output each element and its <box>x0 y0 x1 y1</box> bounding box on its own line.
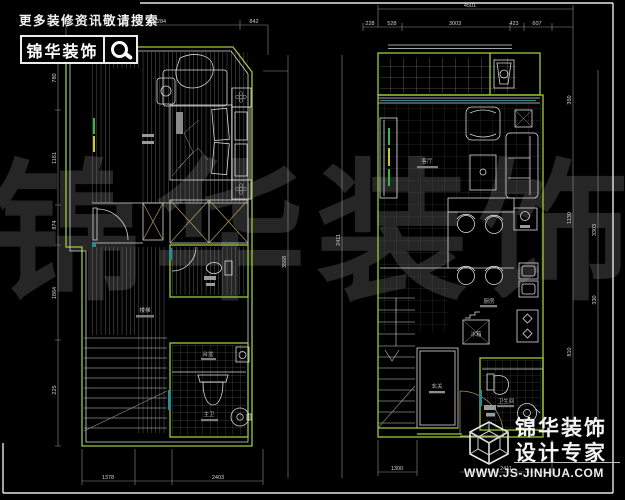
svg-text:228: 228 <box>365 21 374 27</box>
svg-text:780: 780 <box>52 73 58 82</box>
fridge: 冰箱 <box>463 312 489 344</box>
svg-text:1378: 1378 <box>102 475 114 481</box>
svg-text:2411: 2411 <box>336 234 342 246</box>
svg-text:1864: 1864 <box>52 287 58 299</box>
svg-text:玄关: 玄关 <box>431 382 443 390</box>
hallway-label: 楼梯 <box>139 306 151 314</box>
hallway-floor <box>92 247 167 335</box>
svg-text:842: 842 <box>249 19 258 25</box>
counter-label: 台盆 <box>202 350 214 358</box>
svg-text:225: 225 <box>52 385 58 394</box>
svg-text:874: 874 <box>52 220 58 229</box>
entry-mat: 玄关 <box>417 348 458 428</box>
balcony <box>378 45 540 95</box>
bath-label: 主卫 <box>203 410 215 418</box>
stairs <box>84 335 167 433</box>
stove <box>517 310 538 342</box>
svg-text:1300: 1300 <box>391 466 403 472</box>
svg-text:330: 330 <box>592 295 598 304</box>
svg-text:1130: 1130 <box>567 212 573 224</box>
hallway-door <box>92 208 143 247</box>
living-label: 客厅 <box>421 157 433 165</box>
bath-label-right: 卫生间 <box>498 397 515 405</box>
badge-divider <box>514 462 620 463</box>
svg-text:810: 810 <box>567 347 573 356</box>
bar-stools <box>457 214 503 284</box>
svg-text:607: 607 <box>532 21 541 27</box>
mid-bathroom <box>169 245 248 297</box>
svg-text:528: 528 <box>387 21 396 27</box>
svg-text:1161: 1161 <box>52 152 58 164</box>
mid-dimensions: 3568 2411 <box>263 55 342 478</box>
bedroom-rug <box>113 68 141 203</box>
search-icon <box>111 41 128 58</box>
left-plan: 楼梯 <box>52 19 268 485</box>
cad-screenshot: 锦华装饰 .dim{font-size:5.5px;fill:#cfcfcf;f… <box>0 0 625 500</box>
main-bathroom: 台盆 主卫 <box>168 343 251 437</box>
svg-text:3303: 3303 <box>592 224 598 236</box>
kitchen-sink <box>514 208 537 230</box>
brand-badge: 锦华装饰 设计专家 WWW.JS-JINHUA.COM <box>462 412 622 494</box>
search-logo-box[interactable]: 锦华装饰 <box>20 35 138 64</box>
badge-url[interactable]: WWW.JS-JINHUA.COM <box>464 466 604 480</box>
kitchen-label: 厨房 <box>483 297 495 305</box>
right-plan: 客厅 <box>363 3 598 476</box>
cube-logo-icon <box>466 418 512 468</box>
svg-text:350: 350 <box>567 95 573 104</box>
svg-text:3568: 3568 <box>282 256 288 268</box>
svg-text:4501: 4501 <box>464 3 476 9</box>
counter-appliances <box>519 263 538 297</box>
wardrobe <box>143 200 248 243</box>
svg-text:3003: 3003 <box>449 21 461 27</box>
svg-text:2403: 2403 <box>212 475 224 481</box>
search-button[interactable] <box>103 37 136 62</box>
search-hint-text: 更多装修资讯敬请搜索 <box>19 10 159 29</box>
svg-text:423: 423 <box>509 21 518 27</box>
header-brand-label: 锦华装饰 <box>22 37 103 62</box>
svg-text:冰箱: 冰箱 <box>470 330 482 338</box>
